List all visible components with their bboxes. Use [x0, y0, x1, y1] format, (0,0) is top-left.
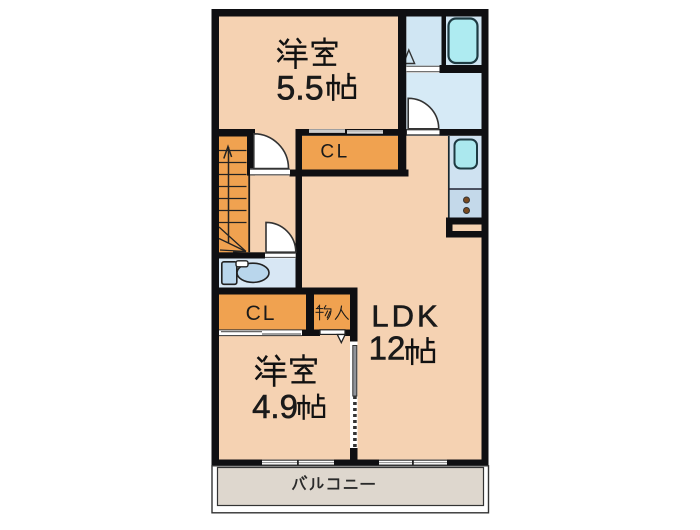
svg-text:CL: CL	[246, 302, 277, 325]
svg-text:CL: CL	[320, 142, 349, 163]
svg-text:12: 12	[369, 330, 406, 367]
svg-text:4.9: 4.9	[252, 388, 298, 425]
svg-text:5.5: 5.5	[276, 70, 323, 108]
svg-text:LDK: LDK	[371, 299, 440, 334]
